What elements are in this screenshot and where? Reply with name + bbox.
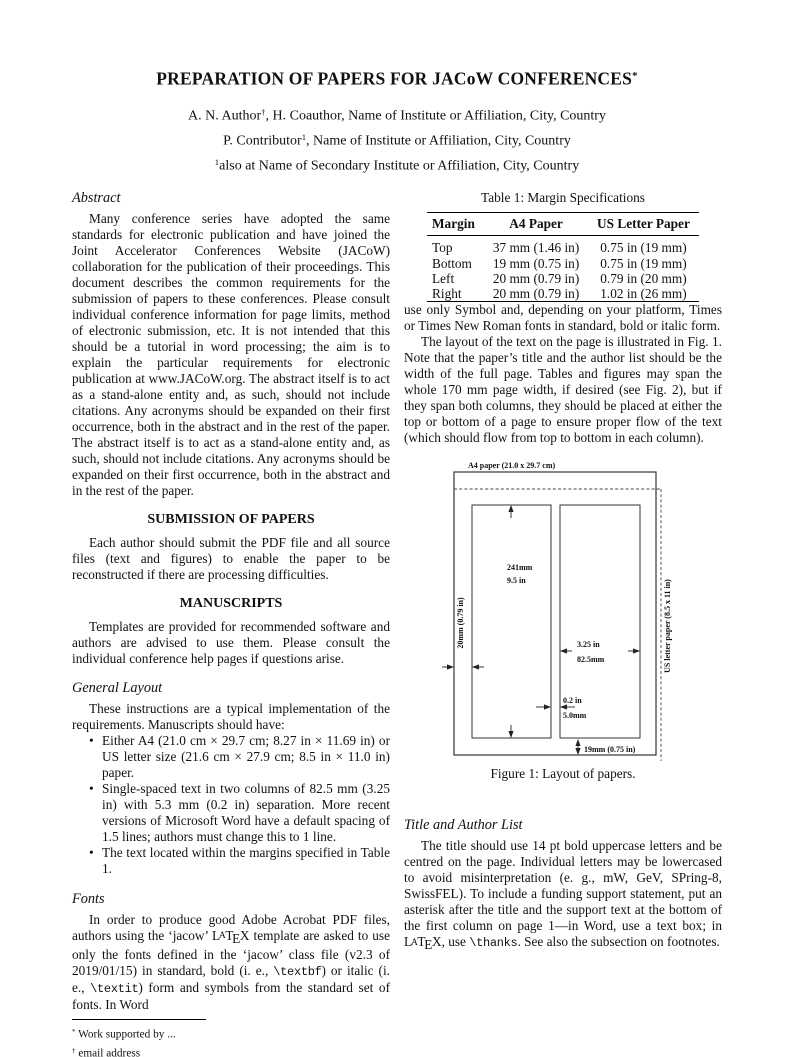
- column-width-in-label: 3.25 in: [577, 640, 600, 649]
- table-header-cell: A4 Paper: [484, 212, 588, 235]
- bullet-item: Single-spaced text in two columns of 82.…: [102, 781, 390, 845]
- figure-1-layout-diagram: A4 paper (21.0 x 29.7 cm) US letter pape…: [404, 456, 722, 782]
- heading-title-and-author-list: Title and Author List: [404, 816, 722, 834]
- general-layout-bullet-list: Either A4 (21.0 cm × 29.7 cm; 8.27 in × …: [72, 733, 390, 877]
- arrow-left-icon: [472, 665, 479, 670]
- bottom-margin-label: 19mm (0.75 in): [584, 745, 636, 754]
- table-cell: 1.02 in (26 mm): [588, 286, 699, 302]
- column-height-mm-label: 241mm: [507, 563, 533, 572]
- table-cell: 0.75 in (19 mm): [588, 256, 699, 271]
- paper-page: PREPARATION OF PAPERS FOR JACoW CONFEREN…: [0, 0, 794, 1057]
- heading-fonts: Fonts: [72, 890, 390, 908]
- figure-1-caption: Figure 1: Layout of papers.: [404, 766, 722, 782]
- column-height-in-label: 9.5 in: [507, 576, 526, 585]
- table-cell: 0.79 in (20 mm): [588, 271, 699, 286]
- table-row: Top 37 mm (1.46 in) 0.75 in (19 mm): [427, 236, 699, 256]
- arrow-right-icon: [544, 705, 551, 710]
- submission-paragraph: Each author should submit the PDF file a…: [72, 535, 390, 583]
- abstract-paragraph: Many conference series have adopted the …: [72, 211, 390, 499]
- left-text-column-outline: [472, 505, 551, 738]
- general-layout-intro: These instructions are a typical impleme…: [72, 701, 390, 733]
- table-cell: Top: [427, 236, 484, 256]
- column-width-mm-label: 82.5mm: [577, 655, 605, 664]
- arrow-left-icon: [560, 705, 567, 710]
- arrow-down-icon: [508, 731, 513, 738]
- table-cell: Right: [427, 286, 484, 302]
- heading-submission-of-papers: SUBMISSION OF PAPERS: [72, 511, 390, 528]
- right-column: Table 1: Margin Specifications Margin A4…: [404, 189, 722, 1057]
- table-row: Right 20 mm (0.79 in) 1.02 in (26 mm): [427, 286, 699, 302]
- bullet-item: The text located within the margins spec…: [102, 845, 390, 877]
- footnote-rule: [72, 1019, 206, 1020]
- column-gap-mm-label: 5.0mm: [563, 711, 587, 720]
- table-cell: 20 mm (0.79 in): [484, 286, 588, 302]
- title-author-paragraph: The title should use 14 pt bold uppercas…: [404, 838, 722, 953]
- a4-outline: [454, 472, 656, 755]
- table-cell: 20 mm (0.79 in): [484, 271, 588, 286]
- arrow-up-icon: [508, 505, 513, 512]
- arrow-up-icon: [575, 739, 580, 746]
- paper-header: PREPARATION OF PAPERS FOR JACoW CONFEREN…: [0, 0, 794, 177]
- arrow-down-icon: [575, 748, 580, 755]
- author-line: 1also at Name of Secondary Institute or …: [0, 152, 794, 177]
- table-header-row: Margin A4 Paper US Letter Paper: [427, 212, 699, 235]
- author-line: P. Contributor1, Name of Institute or Af…: [0, 127, 794, 152]
- table-cell: 37 mm (1.46 in): [484, 236, 588, 256]
- fonts-continuation-paragraph: use only Symbol and, depending on your p…: [404, 302, 722, 334]
- table-header-cell: US Letter Paper: [588, 212, 699, 235]
- two-column-body: Abstract Many conference series have ado…: [0, 177, 794, 1057]
- left-column: Abstract Many conference series have ado…: [72, 189, 390, 1057]
- table-row: Bottom 19 mm (0.75 in) 0.75 in (19 mm): [427, 256, 699, 271]
- footnote-funding: * Work supported by ...: [72, 1024, 390, 1043]
- heading-general-layout: General Layout: [72, 679, 390, 697]
- table-header-cell: Margin: [427, 212, 484, 235]
- margin-specifications-table: Margin A4 Paper US Letter Paper Top 37 m…: [427, 212, 699, 302]
- footnote-block: * Work supported by ... † email address: [72, 1019, 390, 1057]
- author-line: A. N. Author†, H. Coauthor, Name of Inst…: [0, 102, 794, 127]
- layout-paragraph: The layout of the text on the page is il…: [404, 334, 722, 446]
- arrow-right-icon: [447, 665, 454, 670]
- bullet-item: Either A4 (21.0 cm × 29.7 cm; 8.27 in × …: [102, 733, 390, 781]
- page-title: PREPARATION OF PAPERS FOR JACoW CONFEREN…: [0, 66, 794, 88]
- layout-diagram-svg: A4 paper (21.0 x 29.7 cm) US letter pape…: [404, 456, 722, 762]
- us-letter-paper-label: US letter paper (8.5 x 11 in): [663, 579, 672, 673]
- column-gap-in-label: 0.2 in: [563, 696, 582, 705]
- arrow-left-icon: [560, 649, 567, 654]
- arrow-right-icon: [633, 649, 640, 654]
- heading-abstract: Abstract: [72, 189, 390, 207]
- author-block: A. N. Author†, H. Coauthor, Name of Inst…: [0, 102, 794, 176]
- fonts-paragraph: In order to produce good Adobe Acrobat P…: [72, 912, 390, 1013]
- footnote-email: † email address: [72, 1043, 390, 1057]
- manuscripts-paragraph: Templates are provided for recommended s…: [72, 619, 390, 667]
- table-cell: 19 mm (0.75 in): [484, 256, 588, 271]
- table-cell: 0.75 in (19 mm): [588, 236, 699, 256]
- table-cell: Bottom: [427, 256, 484, 271]
- left-margin-label: 20mm (0.79 in): [456, 597, 465, 649]
- heading-manuscripts: MANUSCRIPTS: [72, 595, 390, 612]
- a4-paper-label: A4 paper (21.0 x 29.7 cm): [468, 461, 556, 470]
- table-cell: Left: [427, 271, 484, 286]
- table-row: Left 20 mm (0.79 in) 0.79 in (20 mm): [427, 271, 699, 286]
- table-1-caption: Table 1: Margin Specifications: [404, 190, 722, 206]
